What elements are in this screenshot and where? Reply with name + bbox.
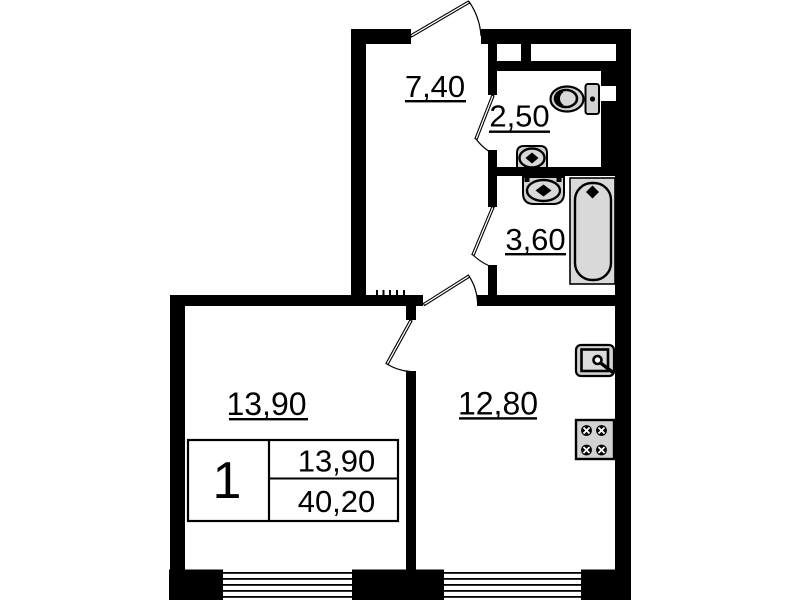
svg-text:12,80: 12,80 [458, 386, 538, 422]
svg-text:13,90: 13,90 [298, 444, 376, 479]
svg-text:7,40: 7,40 [405, 69, 465, 104]
svg-text:3,60: 3,60 [505, 222, 565, 257]
svg-text:1: 1 [213, 452, 242, 510]
svg-text:13,90: 13,90 [226, 386, 306, 422]
svg-text:2,50: 2,50 [489, 99, 549, 134]
svg-text:40,20: 40,20 [298, 484, 376, 519]
